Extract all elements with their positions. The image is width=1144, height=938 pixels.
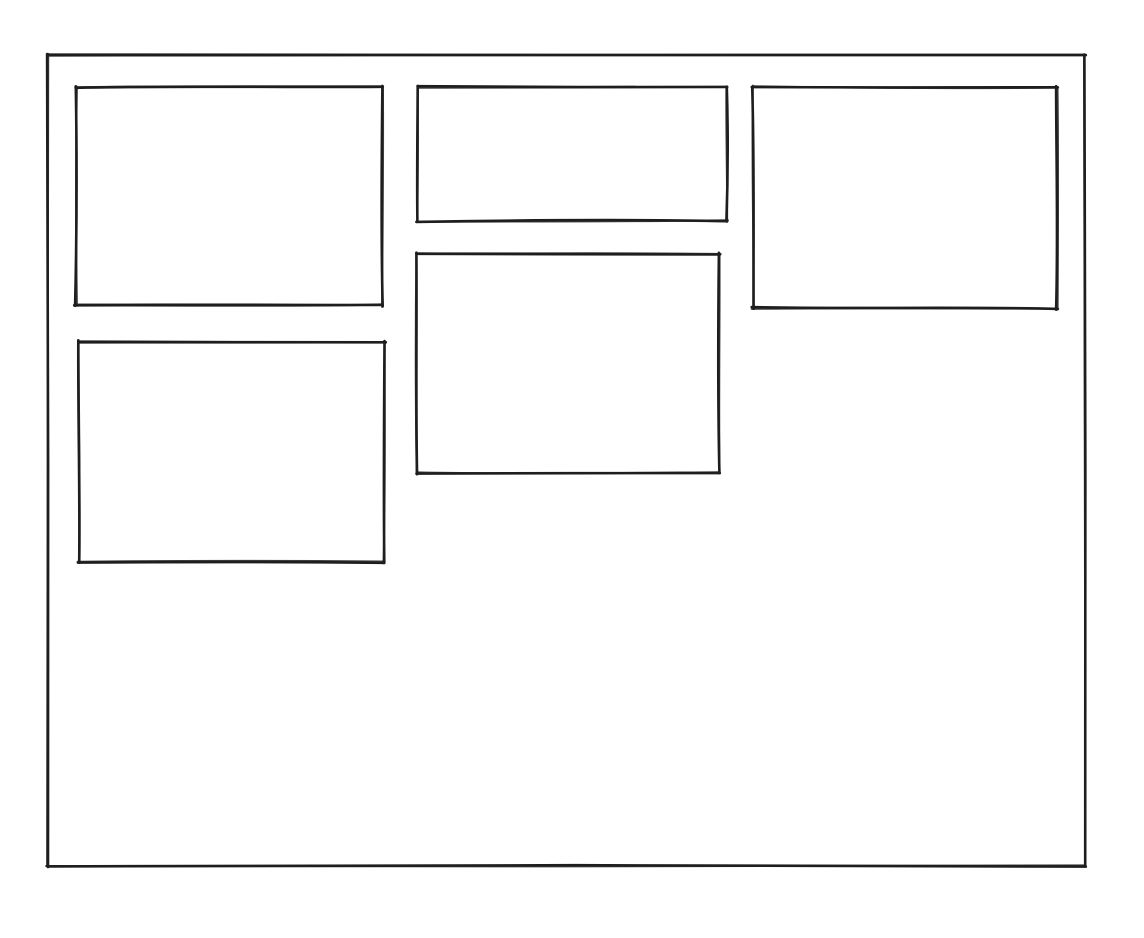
sketch-page [0,0,1144,938]
sketch-stroke [418,87,728,88]
wireframe-sketch-canvas [0,0,1144,938]
sketch-stroke [417,472,720,473]
sketch-stroke [46,865,1085,866]
sketch-stroke [382,86,383,307]
sketch-stroke [47,54,1085,55]
sketch-stroke [78,561,385,562]
sketch-stroke [416,253,720,254]
sketch-stroke [76,87,77,306]
panel-middle-left [78,340,386,563]
sketch-stroke [417,86,418,222]
panel-top-center [416,86,728,222]
sketch-stroke [752,308,1058,309]
sketch-stroke [726,87,727,222]
panel-top-right [752,86,1058,310]
sketch-stroke [1084,54,1085,866]
sketch-stroke [79,341,80,563]
sketch-stroke [47,54,48,866]
sketch-stroke [752,86,753,309]
panel-middle-center [416,253,721,475]
panel-top-left [74,86,383,307]
sketch-stroke [75,86,382,87]
sketch-stroke [75,304,383,305]
outer-frame [46,54,1086,867]
sketch-stroke [1058,87,1059,310]
sketch-stroke [416,253,417,474]
